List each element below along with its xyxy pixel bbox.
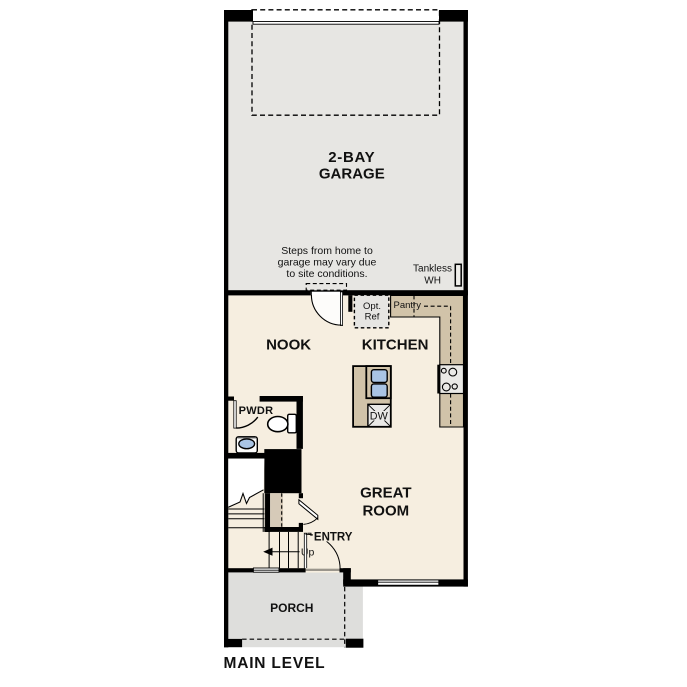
svg-text:ROOM: ROOM	[362, 502, 409, 519]
svg-text:PORCH: PORCH	[270, 601, 313, 615]
svg-text:2-BAY: 2-BAY	[328, 149, 375, 166]
svg-text:garage may vary due: garage may vary due	[278, 257, 377, 269]
svg-text:MAIN LEVEL: MAIN LEVEL	[224, 655, 326, 672]
svg-text:PWDR: PWDR	[239, 405, 274, 417]
svg-text:KITCHEN: KITCHEN	[362, 336, 429, 353]
svg-text:Pantry: Pantry	[394, 300, 422, 311]
svg-text:Up: Up	[301, 546, 315, 558]
svg-text:Tankless: Tankless	[413, 263, 452, 274]
svg-text:ENTRY: ENTRY	[314, 531, 353, 543]
svg-text:GARAGE: GARAGE	[319, 166, 385, 183]
svg-text:WH: WH	[424, 276, 441, 287]
svg-text:to site conditions.: to site conditions.	[286, 268, 367, 280]
svg-text:Ref: Ref	[365, 312, 380, 323]
svg-text:GREAT: GREAT	[360, 484, 411, 501]
svg-text:DW: DW	[370, 410, 389, 422]
svg-text:Steps from home to: Steps from home to	[281, 245, 373, 257]
svg-text:Opt.: Opt.	[363, 301, 381, 312]
svg-text:NOOK: NOOK	[266, 336, 311, 353]
